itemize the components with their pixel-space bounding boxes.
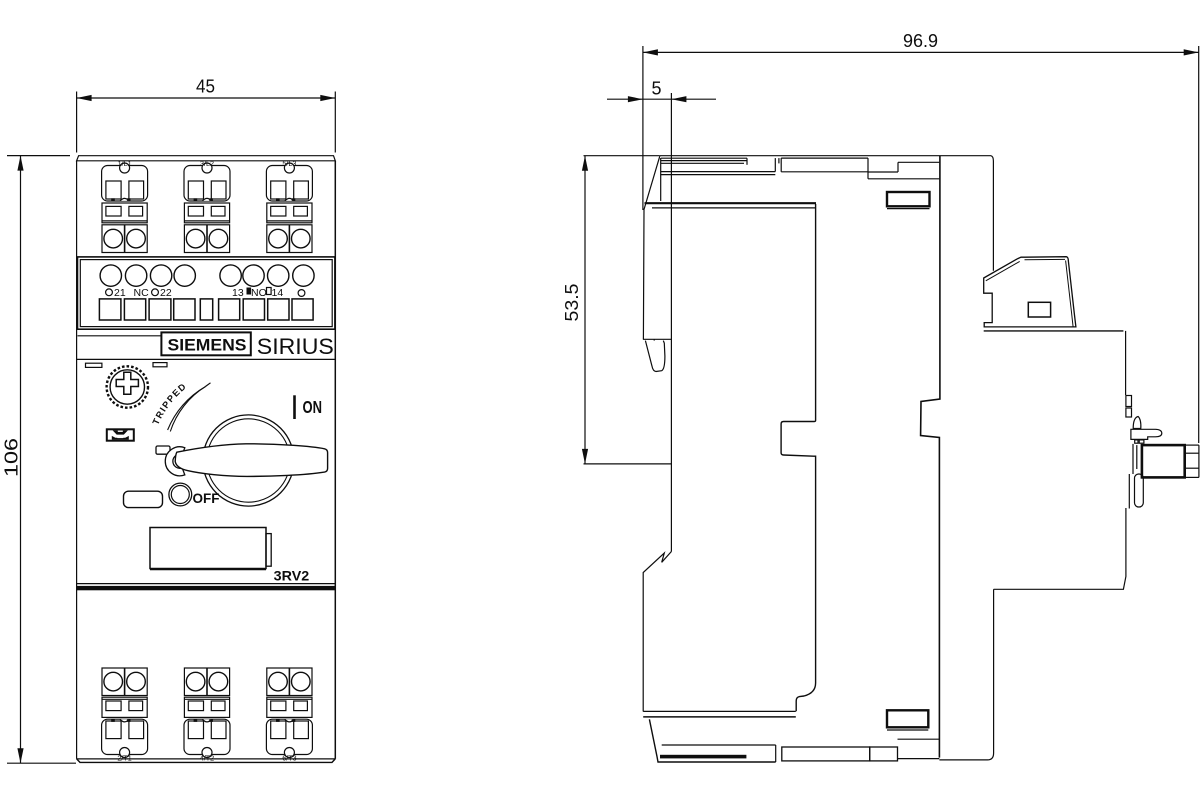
svg-text:ON: ON bbox=[303, 397, 323, 417]
svg-text:3RV2: 3RV2 bbox=[274, 568, 310, 584]
svg-text:NO: NO bbox=[251, 287, 267, 299]
svg-text:5: 5 bbox=[652, 79, 662, 99]
svg-text:53.5: 53.5 bbox=[562, 284, 582, 322]
svg-text:5/L3: 5/L3 bbox=[282, 159, 296, 168]
svg-text:NC: NC bbox=[134, 287, 150, 299]
svg-text:OFF: OFF bbox=[193, 491, 220, 506]
svg-text:6/T3: 6/T3 bbox=[282, 754, 296, 763]
svg-text:106: 106 bbox=[2, 438, 22, 477]
svg-text:14: 14 bbox=[272, 287, 284, 299]
svg-text:SIRIUS: SIRIUS bbox=[257, 334, 334, 359]
svg-text:1/L1: 1/L1 bbox=[118, 159, 132, 168]
svg-text:4/T2: 4/T2 bbox=[200, 754, 214, 763]
svg-text:SIEMENS: SIEMENS bbox=[168, 335, 247, 354]
svg-text:2/T1: 2/T1 bbox=[117, 754, 131, 763]
svg-text:21: 21 bbox=[114, 287, 126, 299]
svg-text:96.9: 96.9 bbox=[903, 31, 938, 51]
svg-text:3/L2: 3/L2 bbox=[200, 159, 214, 168]
svg-text:13: 13 bbox=[232, 287, 244, 299]
svg-text:45: 45 bbox=[196, 77, 215, 97]
svg-text:22: 22 bbox=[160, 287, 172, 299]
